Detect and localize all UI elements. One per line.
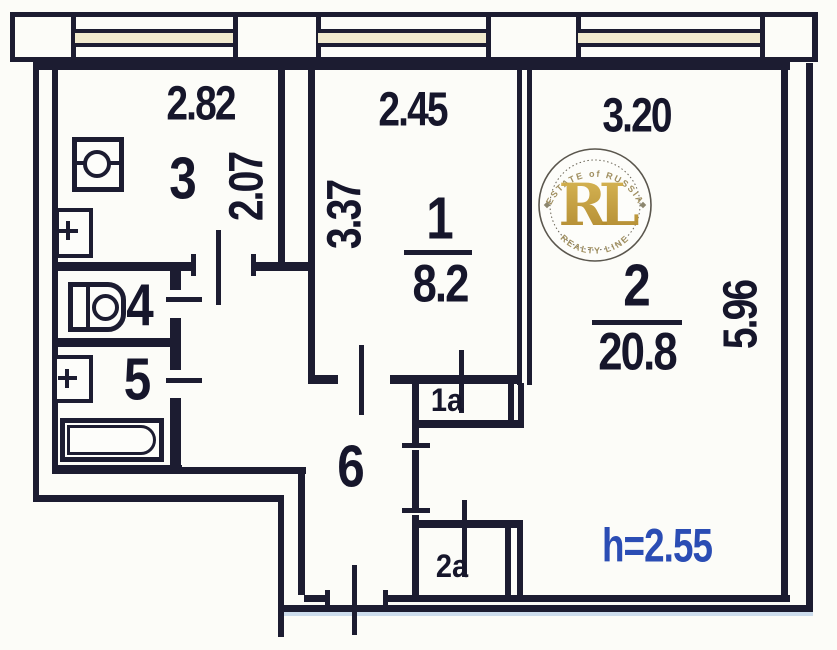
room-4-number: 4 <box>115 276 164 336</box>
room-6-number: 6 <box>322 434 381 501</box>
dim-room1-depth: 3.37 <box>317 168 371 263</box>
closet-1a-number: 1a <box>424 382 470 420</box>
watermark-seal: ESTATE of RUSSIA REALTY LINE RL <box>522 132 668 278</box>
room-5-number: 5 <box>111 350 163 410</box>
floor-plan: 2.82 2.45 3.20 2.07 3.37 5.96 3 1 8.2 2 … <box>0 0 837 650</box>
room-2-area: 20.8 <box>585 322 690 380</box>
labels-layer: 2.82 2.45 3.20 2.07 3.37 5.96 3 1 8.2 2 … <box>0 0 837 650</box>
room-1-area: 8.2 <box>400 254 480 312</box>
ceiling-height-label: h=2.55 <box>584 515 729 576</box>
closet-2a-number: 2a <box>428 546 476 589</box>
room-1-number: 1 <box>410 188 471 250</box>
dim-kitchen-width: 2.82 <box>151 76 251 130</box>
watermark-monogram: RL <box>559 171 639 239</box>
dim-kitchen-depth: 2.07 <box>219 140 273 235</box>
dim-room2-depth: 5.96 <box>713 268 767 363</box>
dim-room1-width: 2.45 <box>363 82 463 136</box>
room-3-number: 3 <box>154 146 213 213</box>
